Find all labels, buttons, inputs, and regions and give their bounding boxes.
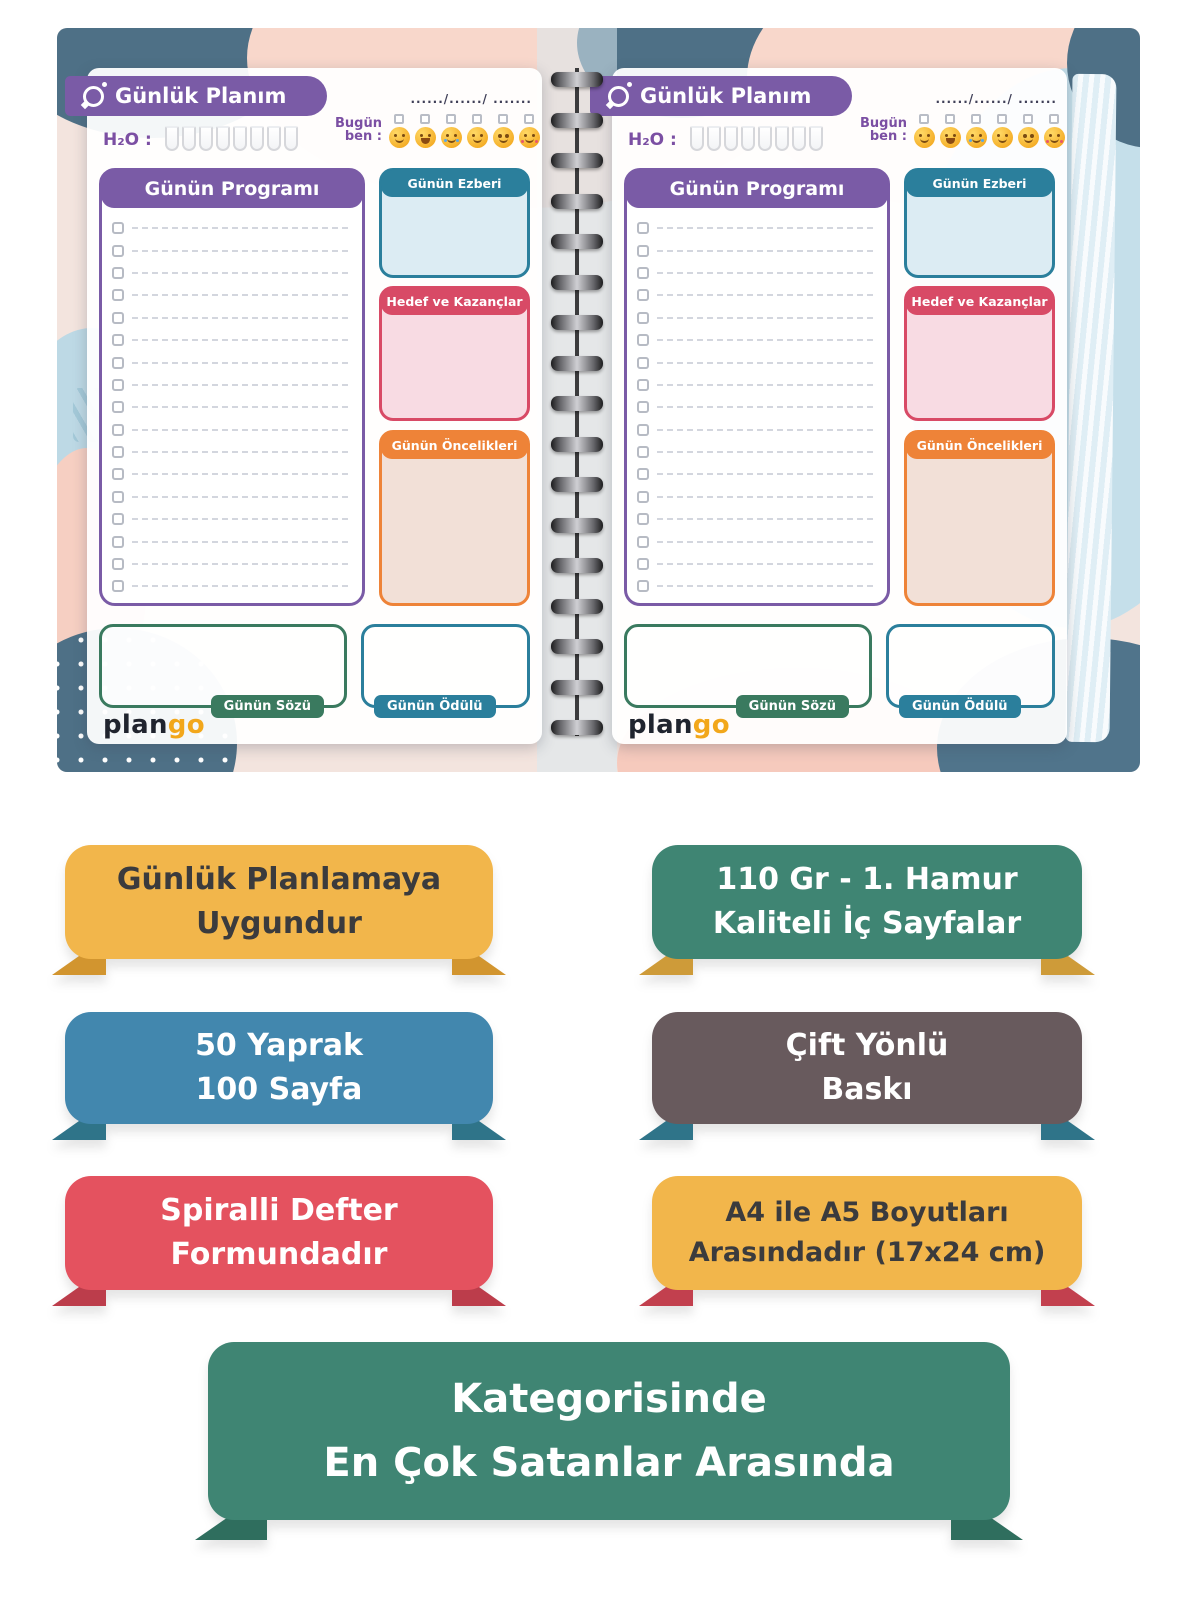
crying-face-icon: [441, 127, 462, 148]
mood-checkbox: [420, 114, 430, 124]
water-cup-icon: [707, 126, 721, 151]
task-row: [112, 284, 348, 306]
mood-checkbox: [524, 114, 534, 124]
quote-label: Günün Sözü: [211, 695, 324, 718]
task-line: [132, 541, 348, 543]
notebook-right-page: Günlük Planım ....../....../ ....... H₂O…: [612, 68, 1067, 744]
badge-line-1: 50 Yaprak: [195, 1026, 363, 1067]
task-checkbox: [637, 379, 649, 391]
page-title: Günlük Planım: [115, 84, 286, 108]
task-checkbox: [637, 312, 649, 324]
task-row: [637, 217, 873, 239]
task-checkbox: [112, 424, 124, 436]
task-checkbox: [112, 334, 124, 346]
task-checkbox: [637, 424, 649, 436]
hearts-face-icon: [1044, 127, 1065, 148]
task-line: [657, 563, 873, 565]
spiral-coil-icon: [551, 72, 603, 87]
badge-line-2: Baskı: [821, 1070, 912, 1111]
mood-item: [992, 114, 1013, 148]
priorities-box: Günün Öncelikleri: [904, 430, 1055, 606]
mood-item: [467, 114, 488, 148]
plango-logo: plango: [628, 710, 730, 740]
task-row: [112, 262, 348, 284]
page-edges: [1066, 74, 1117, 742]
task-line: [132, 429, 348, 431]
spiral-coil-icon: [551, 518, 603, 533]
mood-item: [441, 114, 462, 148]
mood-checkbox: [472, 114, 482, 124]
goals-title: Hedef ve Kazançlar: [906, 288, 1053, 315]
spiral-coil-icon: [551, 194, 603, 209]
badge-line-2: Arasındadır (17x24 cm): [689, 1235, 1046, 1271]
plango-mark-icon: [83, 86, 104, 107]
task-row: [637, 486, 873, 508]
task-checkbox: [637, 222, 649, 234]
mood-item: [519, 114, 540, 148]
water-cup-icon: [792, 126, 806, 151]
smiling-face-icon: [389, 127, 410, 148]
task-line: [657, 585, 873, 587]
task-checkbox: [112, 558, 124, 570]
task-line: [657, 451, 873, 453]
page-title-banner: Günlük Planım: [65, 76, 327, 116]
mood-item: [415, 114, 436, 148]
task-line: [657, 272, 873, 274]
task-row: [637, 396, 873, 418]
task-checkbox: [637, 580, 649, 592]
water-cup-icon: [758, 126, 772, 151]
goals-box: Hedef ve Kazançlar: [904, 286, 1055, 421]
quote-label: Günün Sözü: [736, 695, 849, 718]
task-checkbox: [637, 401, 649, 413]
water-tracker-label: H₂O :: [628, 130, 677, 150]
task-row: [112, 307, 348, 329]
task-line: [657, 496, 873, 498]
water-cup-icon: [809, 126, 823, 151]
water-tracker: [690, 126, 823, 151]
task-line: [657, 250, 873, 252]
logo-go: go: [168, 710, 205, 740]
mood-tracker: Bugün ben :: [335, 114, 540, 148]
task-row: [112, 217, 348, 239]
task-line: [132, 272, 348, 274]
task-line: [657, 473, 873, 475]
mood-faces: [389, 114, 540, 148]
task-checkbox: [112, 513, 124, 525]
task-row: [112, 374, 348, 396]
water-tracker: [165, 126, 298, 151]
task-checkbox: [637, 245, 649, 257]
feature-badge-double-sided: Çift Yönlü Baskı: [652, 1012, 1082, 1124]
mood-item: [493, 114, 514, 148]
product-showcase: { "cover": { "page": { "header": { "titl…: [0, 0, 1199, 1609]
task-row: [112, 329, 348, 351]
spiral-coil-icon: [551, 720, 603, 735]
task-checkbox: [112, 289, 124, 301]
task-checkbox: [112, 267, 124, 279]
badge-line-2: Kaliteli İç Sayfalar: [713, 904, 1021, 945]
task-checkbox: [112, 580, 124, 592]
priorities-title: Günün Öncelikleri: [381, 432, 528, 459]
notebook-left-page: Günlük Planım ....../....../ ....... H₂O…: [87, 68, 542, 744]
task-line: [132, 473, 348, 475]
mood-item: [940, 114, 961, 148]
mood-item: [914, 114, 935, 148]
task-row: [637, 262, 873, 284]
task-checkbox: [112, 357, 124, 369]
mood-checkbox: [394, 114, 404, 124]
task-line: [657, 294, 873, 296]
task-checkbox: [112, 536, 124, 548]
date-line: ....../....../ .......: [410, 92, 532, 106]
task-checkbox: [112, 245, 124, 257]
task-row: [112, 351, 348, 373]
water-cup-icon: [182, 126, 196, 151]
plango-mark-icon: [608, 86, 629, 107]
task-line: [657, 518, 873, 520]
task-line: [657, 362, 873, 364]
task-row: [637, 419, 873, 441]
task-row: [637, 553, 873, 575]
task-checkbox: [637, 468, 649, 480]
task-checkbox: [112, 401, 124, 413]
task-row: [637, 307, 873, 329]
page-title-banner: Günlük Planım: [590, 76, 852, 116]
smiling-face-icon: [914, 127, 935, 148]
task-line: [132, 563, 348, 565]
priorities-box: Günün Öncelikleri: [379, 430, 530, 606]
task-checkbox: [112, 222, 124, 234]
laughing-face-icon: [940, 127, 961, 148]
task-checkbox: [637, 536, 649, 548]
mood-item: [1018, 114, 1039, 148]
mood-label-line2: ben :: [335, 130, 382, 143]
badge-line-2: Formundadır: [171, 1235, 388, 1276]
planner-page: Günlük Planım ....../....../ ....... H₂O…: [87, 68, 542, 744]
program-title: Günün Programı: [626, 170, 888, 208]
task-row: [112, 553, 348, 575]
task-line: [132, 518, 348, 520]
badge-body: Spiralli Defter Formundadır: [65, 1176, 493, 1290]
mood-faces: [914, 114, 1065, 148]
task-line: [657, 317, 873, 319]
hearts-face-icon: [519, 127, 540, 148]
program-title: Günün Programı: [101, 170, 363, 208]
water-cup-icon: [724, 126, 738, 151]
task-row: [112, 441, 348, 463]
task-line: [132, 362, 348, 364]
badge-body: 110 Gr - 1. Hamur Kaliteli İç Sayfalar: [652, 845, 1082, 959]
task-line: [657, 384, 873, 386]
task-checkbox: [637, 513, 649, 525]
task-row: [637, 374, 873, 396]
planner-page: Günlük Planım ....../....../ ....... H₂O…: [612, 68, 1067, 744]
water-tracker-label: H₂O :: [103, 130, 152, 150]
task-line: [132, 585, 348, 587]
task-line: [132, 294, 348, 296]
feature-badge-spiral-form: Spiralli Defter Formundadır: [65, 1176, 493, 1290]
mood-checkbox: [498, 114, 508, 124]
mood-checkbox: [1049, 114, 1059, 124]
badge-body: Kategorisinde En Çok Satanlar Arasında: [208, 1342, 1010, 1520]
task-row: [637, 351, 873, 373]
spiral-coil-icon: [551, 315, 603, 330]
laughing-face-icon: [415, 127, 436, 148]
reward-label: Günün Ödülü: [374, 695, 496, 718]
badge-line-1: A4 ile A5 Boyutları: [725, 1195, 1008, 1231]
page-title: Günlük Planım: [640, 84, 811, 108]
reward-box: Günün Ödülü: [361, 624, 530, 708]
memorize-title: Günün Ezberi: [906, 170, 1053, 197]
badge-body: 50 Yaprak 100 Sayfa: [65, 1012, 493, 1124]
feature-badge-daily-planning: Günlük Planlamaya Uygundur: [65, 845, 493, 959]
task-row: [637, 575, 873, 597]
mood-label: Bugün ben :: [335, 117, 382, 148]
task-row: [637, 441, 873, 463]
cover-image: Günlük Planım ....../....../ ....... H₂O…: [57, 28, 1140, 772]
memorize-box: Günün Ezberi: [904, 168, 1055, 278]
badge-line-2: Uygundur: [196, 904, 362, 945]
task-line: [657, 406, 873, 408]
task-line: [132, 227, 348, 229]
mood-checkbox: [446, 114, 456, 124]
spiral-coil-icon: [551, 113, 603, 128]
spiral-coil-icon: [551, 356, 603, 371]
task-line: [657, 339, 873, 341]
feature-badge-paper-quality: 110 Gr - 1. Hamur Kaliteli İç Sayfalar: [652, 845, 1082, 959]
logo-plan: plan: [628, 710, 693, 740]
mood-label: Bugün ben :: [860, 117, 907, 148]
reward-box: Günün Ödülü: [886, 624, 1055, 708]
badge-body: Günlük Planlamaya Uygundur: [65, 845, 493, 959]
memorize-title: Günün Ezberi: [381, 170, 528, 197]
task-row: [637, 530, 873, 552]
task-row: [637, 463, 873, 485]
spiral-coil-icon: [551, 599, 603, 614]
task-line: [657, 541, 873, 543]
badge-body: A4 ile A5 Boyutları Arasındadır (17x24 c…: [652, 1176, 1082, 1290]
badge-line-1: 110 Gr - 1. Hamur: [716, 860, 1017, 901]
task-line: [657, 429, 873, 431]
spiral-coil-icon: [551, 437, 603, 452]
task-row: [112, 463, 348, 485]
task-checkbox: [637, 334, 649, 346]
task-line: [132, 384, 348, 386]
task-checkbox: [112, 446, 124, 458]
goals-box: Hedef ve Kazançlar: [379, 286, 530, 421]
task-line: [132, 250, 348, 252]
memorize-box: Günün Ezberi: [379, 168, 530, 278]
spiral-coil-icon: [551, 396, 603, 411]
mood-checkbox: [997, 114, 1007, 124]
water-cup-icon: [775, 126, 789, 151]
badge-line-1: Spiralli Defter: [160, 1191, 397, 1232]
task-checkbox: [637, 267, 649, 279]
water-cup-icon: [250, 126, 264, 151]
badge-line-1: Çift Yönlü: [786, 1026, 949, 1067]
logo-plan: plan: [103, 710, 168, 740]
badge-body: Çift Yönlü Baskı: [652, 1012, 1082, 1124]
task-row: [112, 486, 348, 508]
badge-line-1: Günlük Planlamaya: [117, 860, 441, 901]
task-row: [637, 239, 873, 261]
badge-line-2: En Çok Satanlar Arasında: [323, 1433, 894, 1493]
spiral-coil-icon: [551, 680, 603, 695]
mood-checkbox: [945, 114, 955, 124]
spiral-coil-icon: [551, 639, 603, 654]
plango-logo: plango: [103, 710, 205, 740]
water-cup-icon: [284, 126, 298, 151]
water-cup-icon: [199, 126, 213, 151]
task-checkbox: [637, 446, 649, 458]
pleading-face-icon: [493, 127, 514, 148]
task-row: [637, 284, 873, 306]
task-checkbox: [112, 491, 124, 503]
priorities-title: Günün Öncelikleri: [906, 432, 1053, 459]
task-row: [112, 239, 348, 261]
task-checkbox: [637, 357, 649, 369]
task-line: [657, 227, 873, 229]
smiling-face-icon: [467, 127, 488, 148]
mood-item: [389, 114, 410, 148]
task-row: [112, 396, 348, 418]
feature-badge-bestseller: Kategorisinde En Çok Satanlar Arasında: [208, 1342, 1010, 1520]
mood-checkbox: [919, 114, 929, 124]
task-row: [112, 530, 348, 552]
water-cup-icon: [233, 126, 247, 151]
mood-checkbox: [971, 114, 981, 124]
pleading-face-icon: [1018, 127, 1039, 148]
feature-badge-size-17x24: A4 ile A5 Boyutları Arasındadır (17x24 c…: [652, 1176, 1082, 1290]
mood-label-line2: ben :: [860, 130, 907, 143]
mood-tracker: Bugün ben :: [860, 114, 1065, 148]
spiral-coil-icon: [551, 558, 603, 573]
spiral-coil-icon: [551, 275, 603, 290]
task-line: [132, 406, 348, 408]
task-checkbox: [112, 312, 124, 324]
task-checkbox: [112, 379, 124, 391]
task-row: [112, 575, 348, 597]
task-line: [132, 317, 348, 319]
smiling-face-icon: [992, 127, 1013, 148]
task-line: [132, 496, 348, 498]
spiral-coil-icon: [551, 153, 603, 168]
task-row: [637, 508, 873, 530]
program-box: Günün Programı: [624, 168, 890, 606]
program-checklist: [627, 207, 887, 598]
task-line: [132, 339, 348, 341]
crying-face-icon: [966, 127, 987, 148]
goals-title: Hedef ve Kazançlar: [381, 288, 528, 315]
quote-box: Günün Sözü: [624, 624, 872, 708]
spiral-coil-icon: [551, 477, 603, 492]
reward-label: Günün Ödülü: [899, 695, 1021, 718]
program-box: Günün Programı: [99, 168, 365, 606]
water-cup-icon: [741, 126, 755, 151]
mood-checkbox: [1023, 114, 1033, 124]
date-line: ....../....../ .......: [935, 92, 1057, 106]
water-cup-icon: [165, 126, 179, 151]
spiral-coil-icon: [551, 234, 603, 249]
task-row: [112, 508, 348, 530]
task-row: [637, 329, 873, 351]
program-checklist: [102, 207, 362, 598]
task-checkbox: [112, 468, 124, 480]
task-checkbox: [637, 558, 649, 570]
feature-badge-page-count: 50 Yaprak 100 Sayfa: [65, 1012, 493, 1124]
water-cup-icon: [690, 126, 704, 151]
task-row: [112, 419, 348, 441]
mood-item: [966, 114, 987, 148]
mood-item: [1044, 114, 1065, 148]
quote-box: Günün Sözü: [99, 624, 347, 708]
badge-line-1: Kategorisinde: [451, 1369, 767, 1429]
task-line: [132, 451, 348, 453]
badge-line-2: 100 Sayfa: [196, 1070, 363, 1111]
water-cup-icon: [216, 126, 230, 151]
water-cup-icon: [267, 126, 281, 151]
task-checkbox: [637, 289, 649, 301]
logo-go: go: [693, 710, 730, 740]
task-checkbox: [637, 491, 649, 503]
